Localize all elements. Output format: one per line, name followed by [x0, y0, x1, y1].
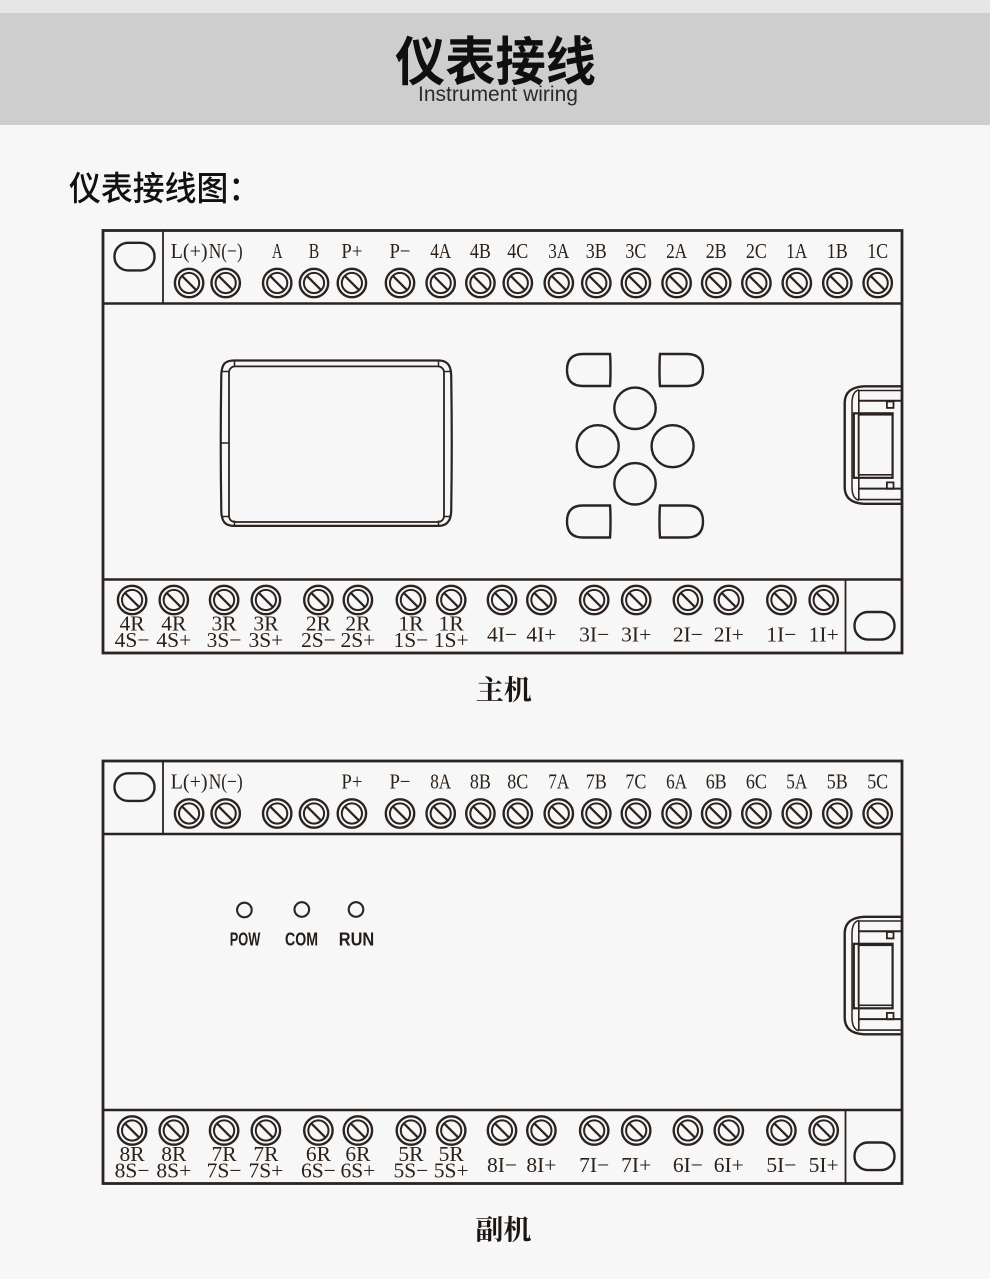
- svg-text:6I−: 6I−: [673, 1153, 703, 1177]
- svg-text:4S+: 4S+: [156, 628, 191, 652]
- svg-text:2S+: 2S+: [340, 628, 375, 652]
- svg-text:7A: 7A: [548, 770, 569, 794]
- svg-text:A: A: [272, 239, 283, 263]
- svg-text:7C: 7C: [625, 770, 646, 794]
- svg-text:POW: POW: [230, 930, 261, 950]
- svg-text:2I−: 2I−: [673, 623, 703, 647]
- svg-text:6I+: 6I+: [714, 1153, 744, 1177]
- svg-text:2I+: 2I+: [714, 623, 744, 647]
- svg-text:7I+: 7I+: [621, 1153, 651, 1177]
- svg-text:N(−): N(−): [209, 770, 243, 794]
- svg-text:8S−: 8S−: [115, 1159, 150, 1183]
- svg-text:3S−: 3S−: [207, 628, 242, 652]
- svg-text:4I−: 4I−: [487, 623, 517, 647]
- svg-text:8S+: 8S+: [156, 1159, 191, 1183]
- svg-text:3I+: 3I+: [621, 623, 651, 647]
- svg-text:3C: 3C: [625, 239, 646, 263]
- svg-text:5C: 5C: [867, 770, 888, 794]
- svg-text:1S−: 1S−: [393, 628, 428, 652]
- svg-text:1B: 1B: [827, 239, 848, 263]
- svg-text:2S−: 2S−: [301, 628, 336, 652]
- svg-text:7B: 7B: [586, 770, 607, 794]
- svg-text:2C: 2C: [746, 239, 767, 263]
- svg-text:2A: 2A: [666, 239, 687, 263]
- svg-text:5B: 5B: [827, 770, 848, 794]
- svg-text:5S−: 5S−: [393, 1159, 428, 1183]
- svg-text:P−: P−: [390, 239, 411, 263]
- svg-text:5I+: 5I+: [809, 1153, 839, 1177]
- svg-text:8I+: 8I+: [526, 1153, 556, 1177]
- svg-text:Instrument wiring: Instrument wiring: [418, 83, 578, 106]
- svg-text:L(+): L(+): [171, 239, 208, 263]
- svg-text:1C: 1C: [867, 239, 888, 263]
- svg-text:3S+: 3S+: [248, 628, 283, 652]
- svg-text:5I−: 5I−: [766, 1153, 796, 1177]
- svg-text:7I−: 7I−: [579, 1153, 609, 1177]
- svg-text:5S+: 5S+: [434, 1159, 469, 1183]
- svg-text:4S−: 4S−: [115, 628, 150, 652]
- svg-text:7S−: 7S−: [207, 1159, 242, 1183]
- svg-text:8C: 8C: [507, 770, 528, 794]
- svg-text:1I+: 1I+: [809, 623, 839, 647]
- svg-text:COM: COM: [285, 930, 318, 950]
- svg-text:4B: 4B: [470, 239, 491, 263]
- svg-text:1A: 1A: [786, 239, 807, 263]
- svg-text:7S+: 7S+: [248, 1159, 283, 1183]
- svg-text:N(−): N(−): [209, 239, 243, 263]
- svg-text:P+: P+: [341, 239, 362, 263]
- svg-text:6B: 6B: [706, 770, 727, 794]
- svg-text:6C: 6C: [746, 770, 767, 794]
- svg-text:4C: 4C: [507, 239, 528, 263]
- svg-text:1I−: 1I−: [766, 623, 796, 647]
- svg-text:8B: 8B: [470, 770, 491, 794]
- svg-text:3A: 3A: [548, 239, 569, 263]
- svg-text:6S−: 6S−: [301, 1159, 336, 1183]
- svg-text:6A: 6A: [666, 770, 687, 794]
- svg-text:P+: P+: [341, 770, 362, 794]
- svg-text:B: B: [309, 239, 320, 263]
- svg-text:4I+: 4I+: [526, 623, 556, 647]
- svg-text:L(+): L(+): [171, 770, 208, 794]
- svg-text:3I−: 3I−: [579, 623, 609, 647]
- svg-text:5A: 5A: [786, 770, 807, 794]
- svg-text:2B: 2B: [706, 239, 727, 263]
- svg-text:1S+: 1S+: [434, 628, 469, 652]
- svg-text:3B: 3B: [586, 239, 607, 263]
- svg-text:8I−: 8I−: [487, 1153, 517, 1177]
- svg-text:8A: 8A: [430, 770, 451, 794]
- svg-text:RUN: RUN: [339, 930, 375, 950]
- svg-text:6S+: 6S+: [340, 1159, 375, 1183]
- svg-text:P−: P−: [390, 770, 411, 794]
- svg-text:4A: 4A: [430, 239, 451, 263]
